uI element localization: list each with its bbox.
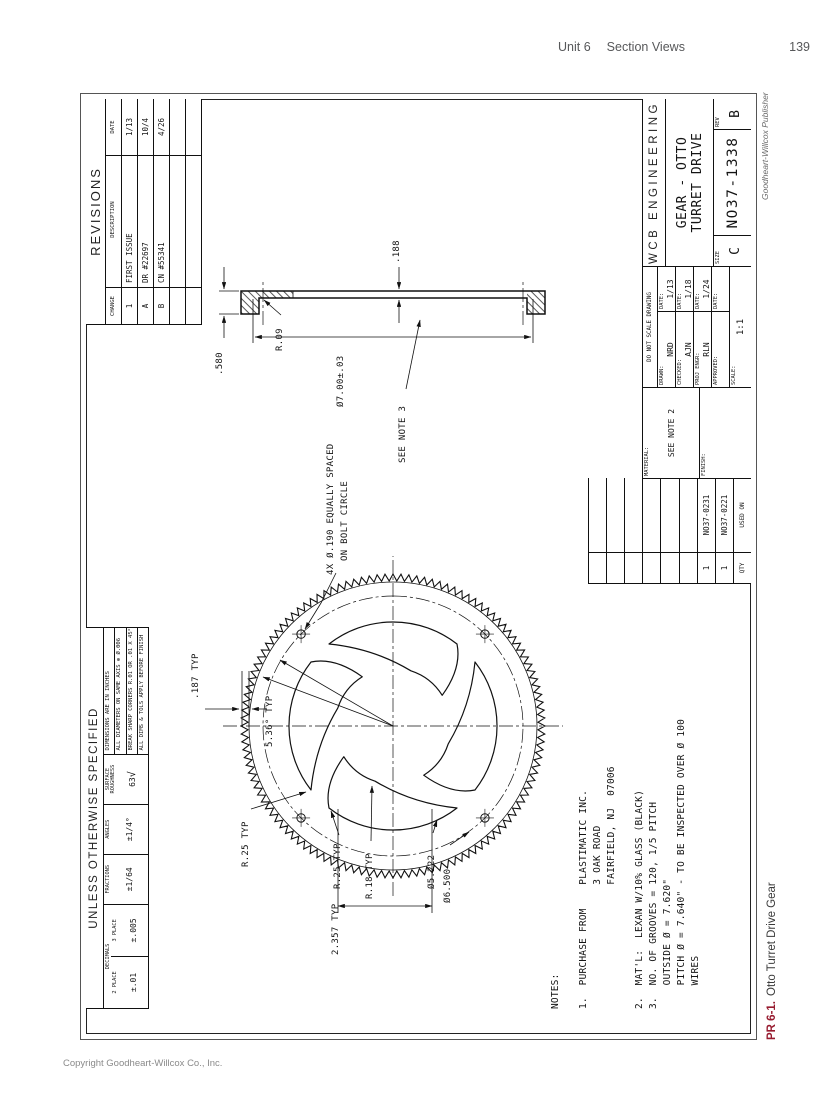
lightening-window xyxy=(424,662,497,791)
angles-value: ±1/4° xyxy=(111,805,148,854)
application-header-row: QTYUSED ON xyxy=(734,478,751,583)
drawn-row: DRAWN:NRD DATE:1/13 xyxy=(658,267,676,387)
dim-label-overall: .580 xyxy=(215,352,225,375)
tolerance-note: ALL DIAMETERS ON SAME AXIS ⊕ Ø.006 xyxy=(115,628,126,754)
tolerance-title: UNLESS OTHERWISE SPECIFIED xyxy=(86,628,104,1008)
tolerance-note: DIMENSIONS ARE IN INCHES xyxy=(104,628,115,754)
material-finish-column: MATERIAL: SEE NOTE 2 FINISH: xyxy=(643,387,751,478)
revisions-block: REVISIONS CHANGE DESCRIPTION DATE 1 FIRS… xyxy=(86,99,202,325)
dim-label-bore: Ø5.222 xyxy=(427,855,437,889)
application-row xyxy=(607,478,625,583)
application-row: 1NO37-0221 xyxy=(716,478,734,583)
figure-caption-label: PR 6-1. xyxy=(766,1001,778,1040)
revision-row: B CN #55341 4/26 xyxy=(154,99,170,324)
do-not-scale-note: DO NOT SCALE DRAWING xyxy=(643,267,658,387)
revision-row xyxy=(186,99,201,324)
dim-label-spacing: 2.357 TYP xyxy=(331,904,341,955)
dim-label-groove-depth: .187 TYP xyxy=(191,653,201,699)
material-value: SEE NOTE 2 xyxy=(643,388,699,478)
lightening-window xyxy=(329,622,458,695)
section-hatch-bottom-rim xyxy=(527,291,545,314)
application-row xyxy=(680,478,698,583)
tolerance-notes: DIMENSIONS ARE IN INCHES ALL DIAMETERS O… xyxy=(104,628,148,754)
application-block: 1NO37-0231 1NO37-0221 QTYUSED ON xyxy=(588,478,751,584)
finish-value xyxy=(700,388,751,478)
section-hatch-top-rim xyxy=(241,291,259,314)
tolerance-decimals: DECIMALS 2 PLACE ±.01 3 PLACE ±.005 xyxy=(104,904,148,1008)
personnel-column: DO NOT SCALE DRAWING DRAWN:NRD DATE:1/13… xyxy=(643,266,751,387)
section-label: Section Views xyxy=(607,40,685,54)
leader-see-note-3 xyxy=(406,320,420,389)
drawing-number: NO37-1338 xyxy=(714,130,751,235)
dim-label-angle: 5.36° TYP xyxy=(265,696,275,747)
col-change: CHANGE xyxy=(106,287,121,324)
dim-label-r25: R.25 TYP xyxy=(333,843,343,889)
revision-row: 1 FIRST ISSUE 1/13 xyxy=(122,99,138,324)
revision-row: A DR #22697 10/4 xyxy=(138,99,154,324)
figure-caption-title: Otto Turret Drive Gear xyxy=(766,882,778,996)
revisions-header-row: CHANGE DESCRIPTION DATE xyxy=(106,99,122,324)
material-cell: MATERIAL: SEE NOTE 2 xyxy=(643,388,700,478)
dim-label-diameter: Ø7.00±.03 xyxy=(336,356,346,407)
checked-row: CHECKED:AJN DATE:1/18 xyxy=(676,267,694,387)
unit-label: Unit 6 xyxy=(558,40,591,54)
lightening-window xyxy=(289,661,362,790)
dim-label-r25b: R.25 TYP xyxy=(241,821,251,867)
dim-label-bolt-circle: Ø6.500 xyxy=(443,869,453,903)
col-date: DATE xyxy=(106,99,121,155)
section-hatch-boss xyxy=(259,291,293,298)
angle-line-2 xyxy=(280,660,393,726)
proj-engr-row: PROJ ENGR:RLN DATE:1/24 xyxy=(694,267,712,387)
surface-value: 63√ xyxy=(116,755,148,804)
three-place-label: 3 PLACE xyxy=(111,905,118,956)
two-place-value: ±.01 xyxy=(118,957,148,1008)
revision-row xyxy=(170,99,186,324)
tolerance-note: ALL DIMS & TOLS APPLY BEFORE FINISH xyxy=(138,628,148,754)
lightening-window xyxy=(328,757,457,830)
decimals-header: DECIMALS xyxy=(104,905,111,1008)
leader-r09 xyxy=(264,300,281,315)
tolerance-note: BREAK SHARP CORNERS R.01 OR .01 X 45° xyxy=(127,628,138,754)
finish-cell: FINISH: xyxy=(700,388,751,478)
finish-label: FINISH: xyxy=(701,453,707,476)
book-page: { "page": { "header": {"unit": "Unit 6",… xyxy=(0,0,837,1112)
revisions-title: REVISIONS xyxy=(86,99,106,324)
size-cell: SIZE C xyxy=(714,235,751,266)
drawing-sheet: UNLESS OTHERWISE SPECIFIED DECIMALS 2 PL… xyxy=(80,93,757,1040)
application-row xyxy=(661,478,679,583)
leader-r18 xyxy=(371,786,372,841)
page-header: Unit 6 Section Views 139 xyxy=(558,40,810,54)
scale-label: SCALE: xyxy=(731,366,737,385)
title-block: MATERIAL: SEE NOTE 2 FINISH: DO NOT SCAL… xyxy=(642,99,751,479)
copyright-notice: Copyright Goodheart-Willcox Co., Inc. xyxy=(63,1058,222,1069)
three-place-value: ±.005 xyxy=(118,905,148,956)
decimals-3place: 3 PLACE ±.005 xyxy=(111,905,148,956)
angle-line-1 xyxy=(263,677,393,726)
dim-label-holes-note-2: ON BOLT CIRCLE xyxy=(340,481,350,561)
leader-bolt-circle-dia xyxy=(450,832,469,845)
dim-label-flange: .188 xyxy=(392,240,402,263)
dim-label-holes-note-1: 4X Ø.190 EQUALLY SPACED xyxy=(326,443,336,575)
two-place-label: 2 PLACE xyxy=(111,957,118,1008)
surface-header: SURFACE ROUGHNESS xyxy=(104,755,116,804)
drawing-title: GEAR - OTTO TURRET DRIVE xyxy=(666,99,714,266)
company-column: WCB ENGINEERING GEAR - OTTO TURRET DRIVE… xyxy=(643,99,751,266)
tolerance-block: UNLESS OTHERWISE SPECIFIED DECIMALS 2 PL… xyxy=(86,627,149,1009)
publisher-credit: Goodheart-Willcox Publisher xyxy=(760,50,770,200)
page-number: 139 xyxy=(789,40,810,54)
surface-roughness-icon: √ xyxy=(127,771,138,777)
fractions-header: FRACTIONS xyxy=(104,855,111,904)
application-row xyxy=(589,478,607,583)
decimals-2place: 2 PLACE ±.01 xyxy=(111,956,148,1008)
approved-row: APPROVED: DATE: xyxy=(712,267,730,387)
col-description: DESCRIPTION xyxy=(106,155,121,287)
tolerance-fractions: FRACTIONS ±1/64 xyxy=(104,854,148,904)
application-row xyxy=(643,478,661,583)
company-name: WCB ENGINEERING xyxy=(643,99,666,266)
leader-bolt-holes xyxy=(305,573,336,629)
general-notes: NOTES: 1. PURCHASE FROM PLASTIMATIC INC.… xyxy=(549,719,703,1009)
number-row: SIZE C NO37-1338 REV B xyxy=(714,99,751,266)
surface-roughness-number: 63 xyxy=(128,777,137,787)
rev-cell: REV B xyxy=(714,99,751,130)
dim-label-fillet: R.09 xyxy=(275,328,285,351)
material-label: MATERIAL: xyxy=(644,447,650,476)
dim-label-r18: R.18 TYP xyxy=(365,853,375,899)
figure-caption: PR 6-1.Otto Turret Drive Gear xyxy=(766,810,778,1040)
application-row: 1NO37-0231 xyxy=(698,478,716,583)
tolerance-surface: SURFACE ROUGHNESS 63√ xyxy=(104,754,148,804)
dim-label-see-note-3: SEE NOTE 3 xyxy=(398,406,408,463)
angles-header: ANGLES xyxy=(104,805,111,854)
tolerance-angles: ANGLES ±1/4° xyxy=(104,804,148,854)
fractions-value: ±1/64 xyxy=(111,855,148,904)
scale-cell: SCALE: 1:1 xyxy=(730,267,751,387)
application-row xyxy=(625,478,643,583)
